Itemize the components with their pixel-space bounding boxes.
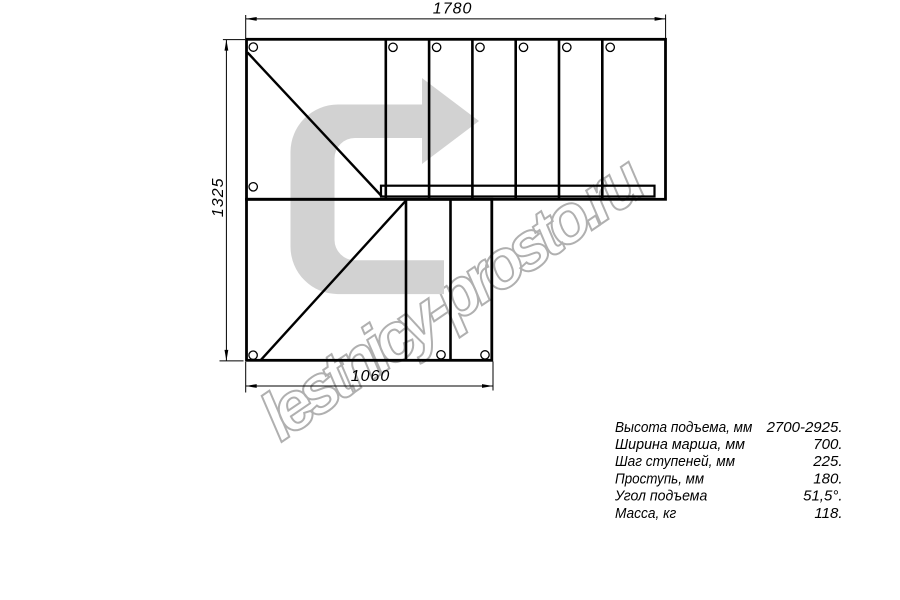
svg-text:1325: 1325	[210, 178, 227, 218]
svg-text:700.: 700.	[813, 436, 842, 453]
svg-text:2700-2925.: 2700-2925.	[766, 419, 843, 436]
svg-text:Шаг ступеней, мм: Шаг ступеней, мм	[615, 453, 735, 470]
svg-text:1060: 1060	[351, 368, 391, 385]
svg-text:51,5°.: 51,5°.	[803, 488, 842, 505]
svg-text:Угол подъема: Угол подъема	[614, 488, 707, 505]
svg-text:Масса, кг: Масса, кг	[615, 505, 677, 522]
svg-text:180.: 180.	[813, 470, 842, 487]
svg-text:Высота подъема, мм: Высота подъема, мм	[615, 419, 752, 436]
svg-text:Проступь, мм: Проступь, мм	[615, 470, 704, 487]
svg-text:1780: 1780	[433, 1, 473, 18]
svg-text:118.: 118.	[814, 505, 842, 522]
svg-text:225.: 225.	[812, 453, 842, 470]
svg-text:Ширина марша, мм: Ширина марша, мм	[615, 436, 745, 453]
